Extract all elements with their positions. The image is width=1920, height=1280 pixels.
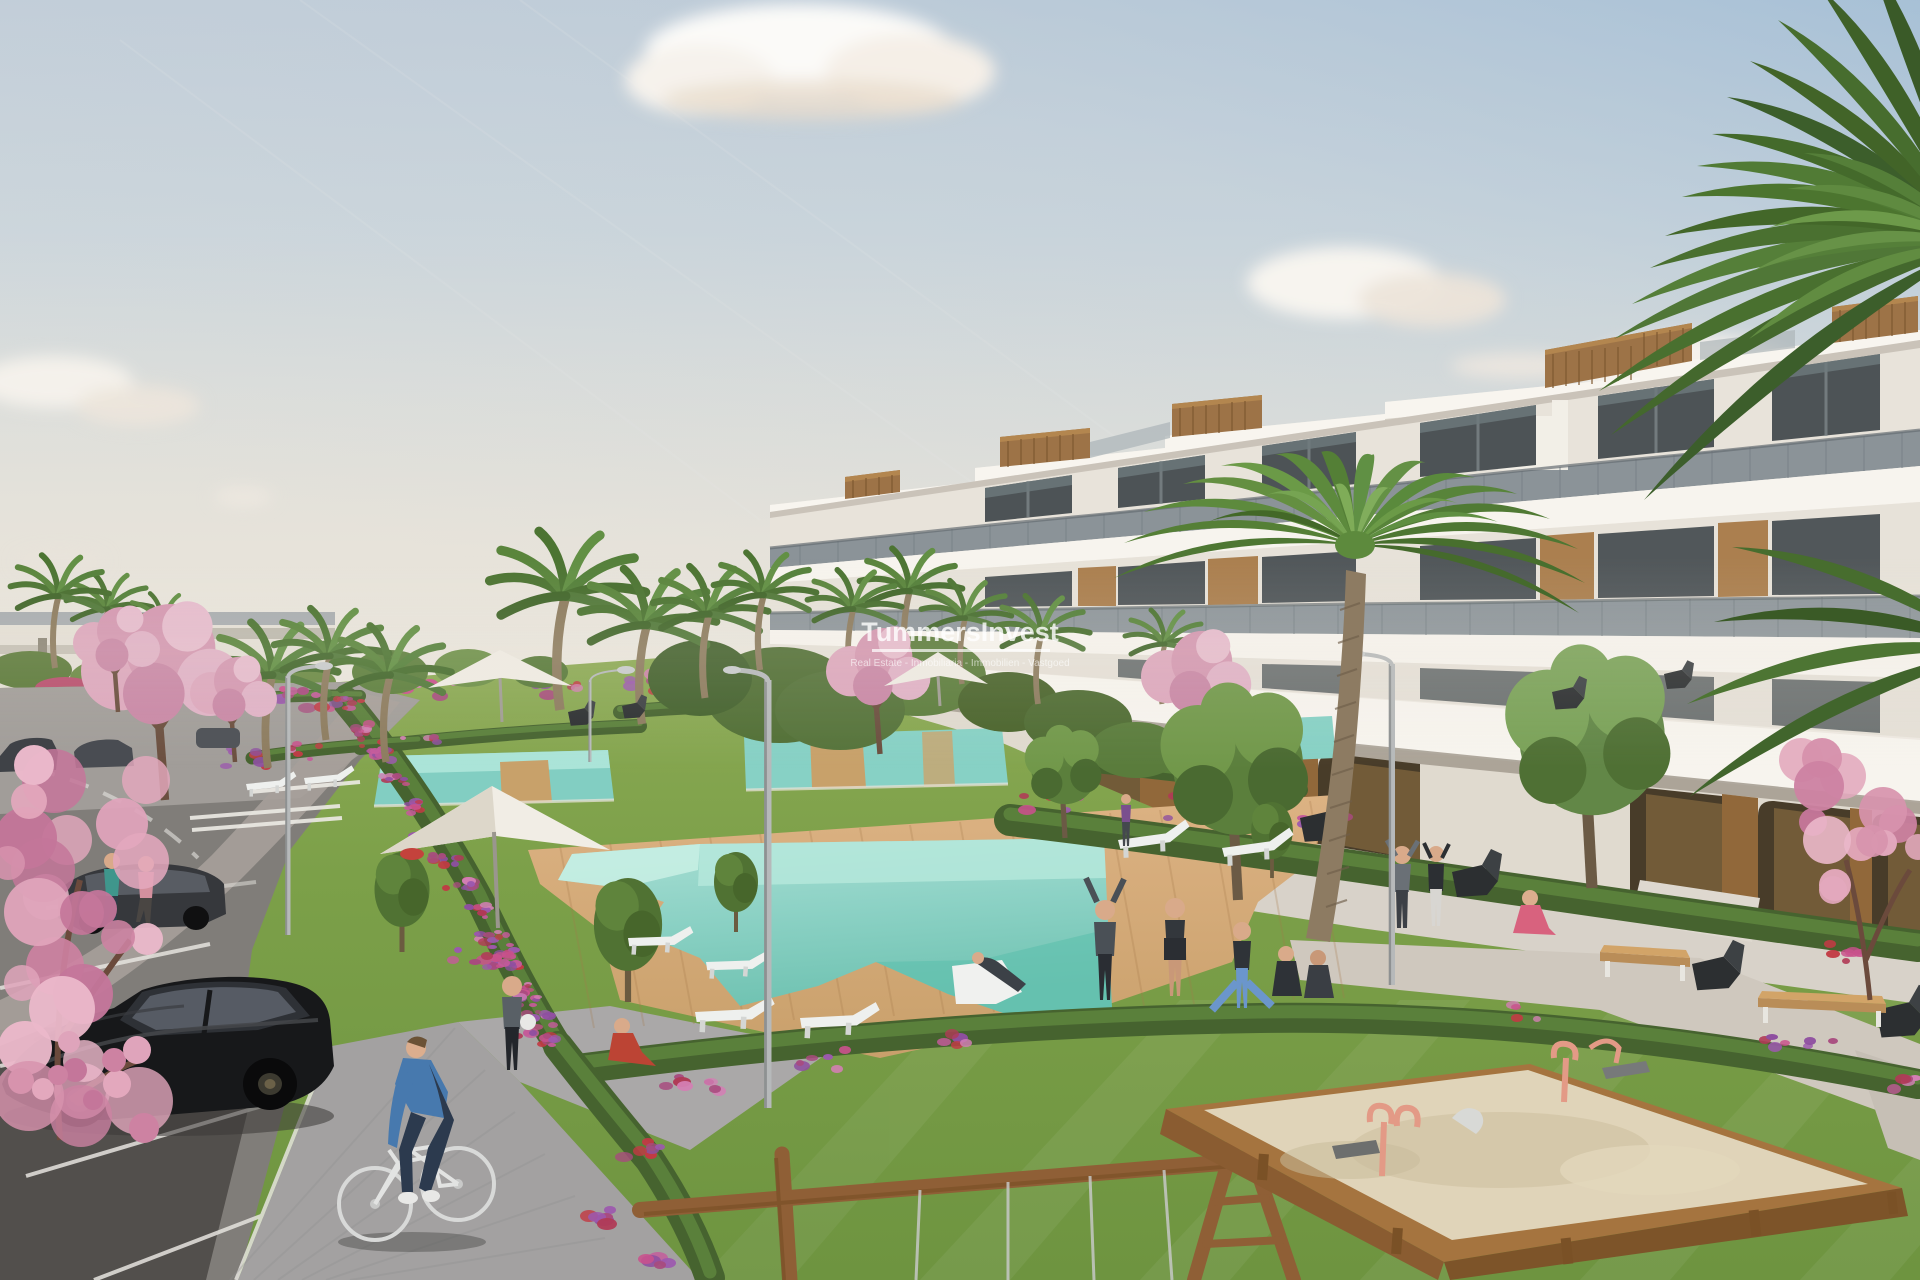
svg-text:TummersInvest: TummersInvest (861, 617, 1059, 647)
svg-text:Real Estate - Inmobiliaria - I: Real Estate - Inmobiliaria - Immobilien … (850, 658, 1069, 669)
